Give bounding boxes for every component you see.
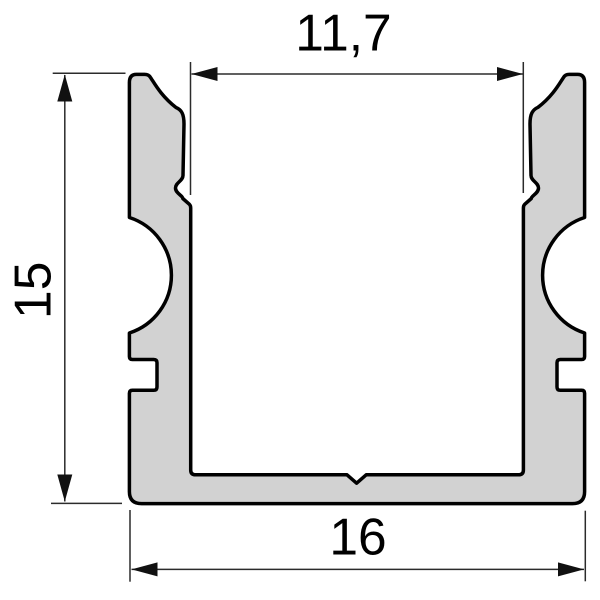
svg-text:16: 16 (329, 508, 386, 566)
svg-text:11,7: 11,7 (295, 4, 391, 62)
svg-text:15: 15 (3, 262, 61, 319)
